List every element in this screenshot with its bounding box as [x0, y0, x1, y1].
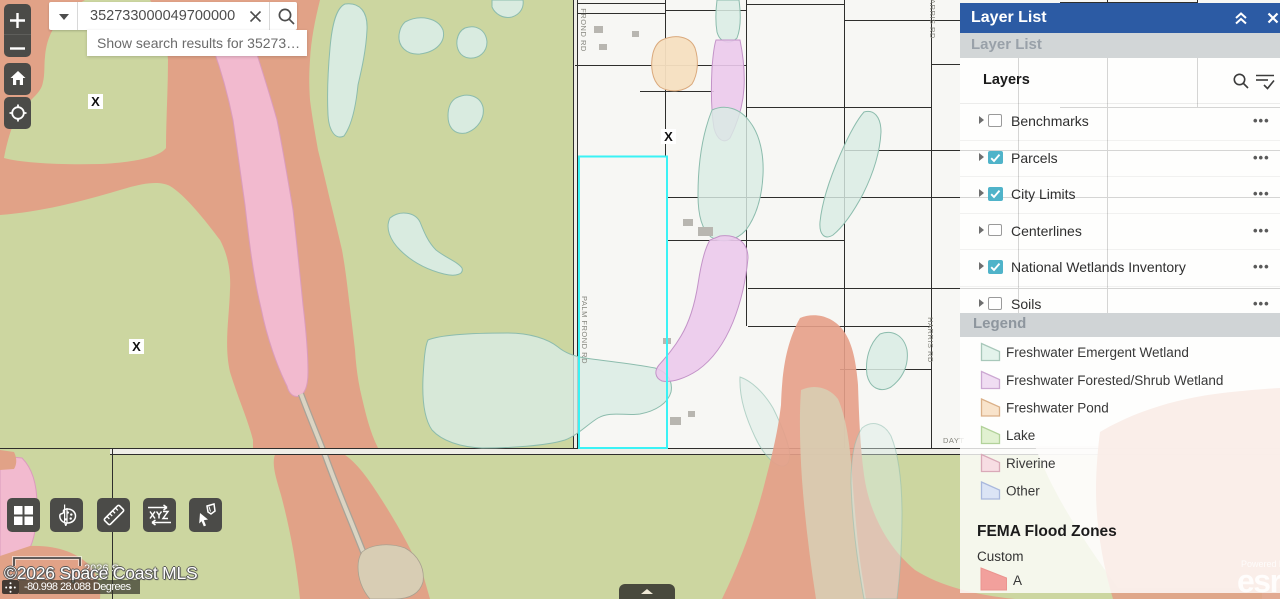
svg-text:HARRIS RD: HARRIS RD: [928, 0, 937, 39]
svg-text:PALM FROND RD: PALM FROND RD: [580, 296, 589, 364]
svg-text:X: X: [91, 94, 100, 109]
svg-text:Lake: Lake: [1006, 428, 1035, 443]
svg-text:FEMA Flood Zones: FEMA Flood Zones: [977, 523, 1117, 540]
svg-text:HARRIS RD: HARRIS RD: [926, 317, 935, 363]
svg-text:FROND RD: FROND RD: [579, 8, 588, 52]
svg-text:X: X: [664, 129, 673, 144]
svg-text:Freshwater Emergent Wetland: Freshwater Emergent Wetland: [1006, 345, 1189, 360]
svg-text:Freshwater Forested/Shrub Wetl: Freshwater Forested/Shrub Wetland: [1006, 373, 1223, 388]
svg-text:Riverine: Riverine: [1006, 456, 1056, 471]
svg-text:A: A: [1013, 573, 1022, 588]
svg-text:Freshwater Pond: Freshwater Pond: [1006, 401, 1109, 416]
svg-text:Other: Other: [1006, 484, 1040, 499]
svg-text:X: X: [132, 339, 141, 354]
svg-text:Custom: Custom: [977, 549, 1024, 564]
